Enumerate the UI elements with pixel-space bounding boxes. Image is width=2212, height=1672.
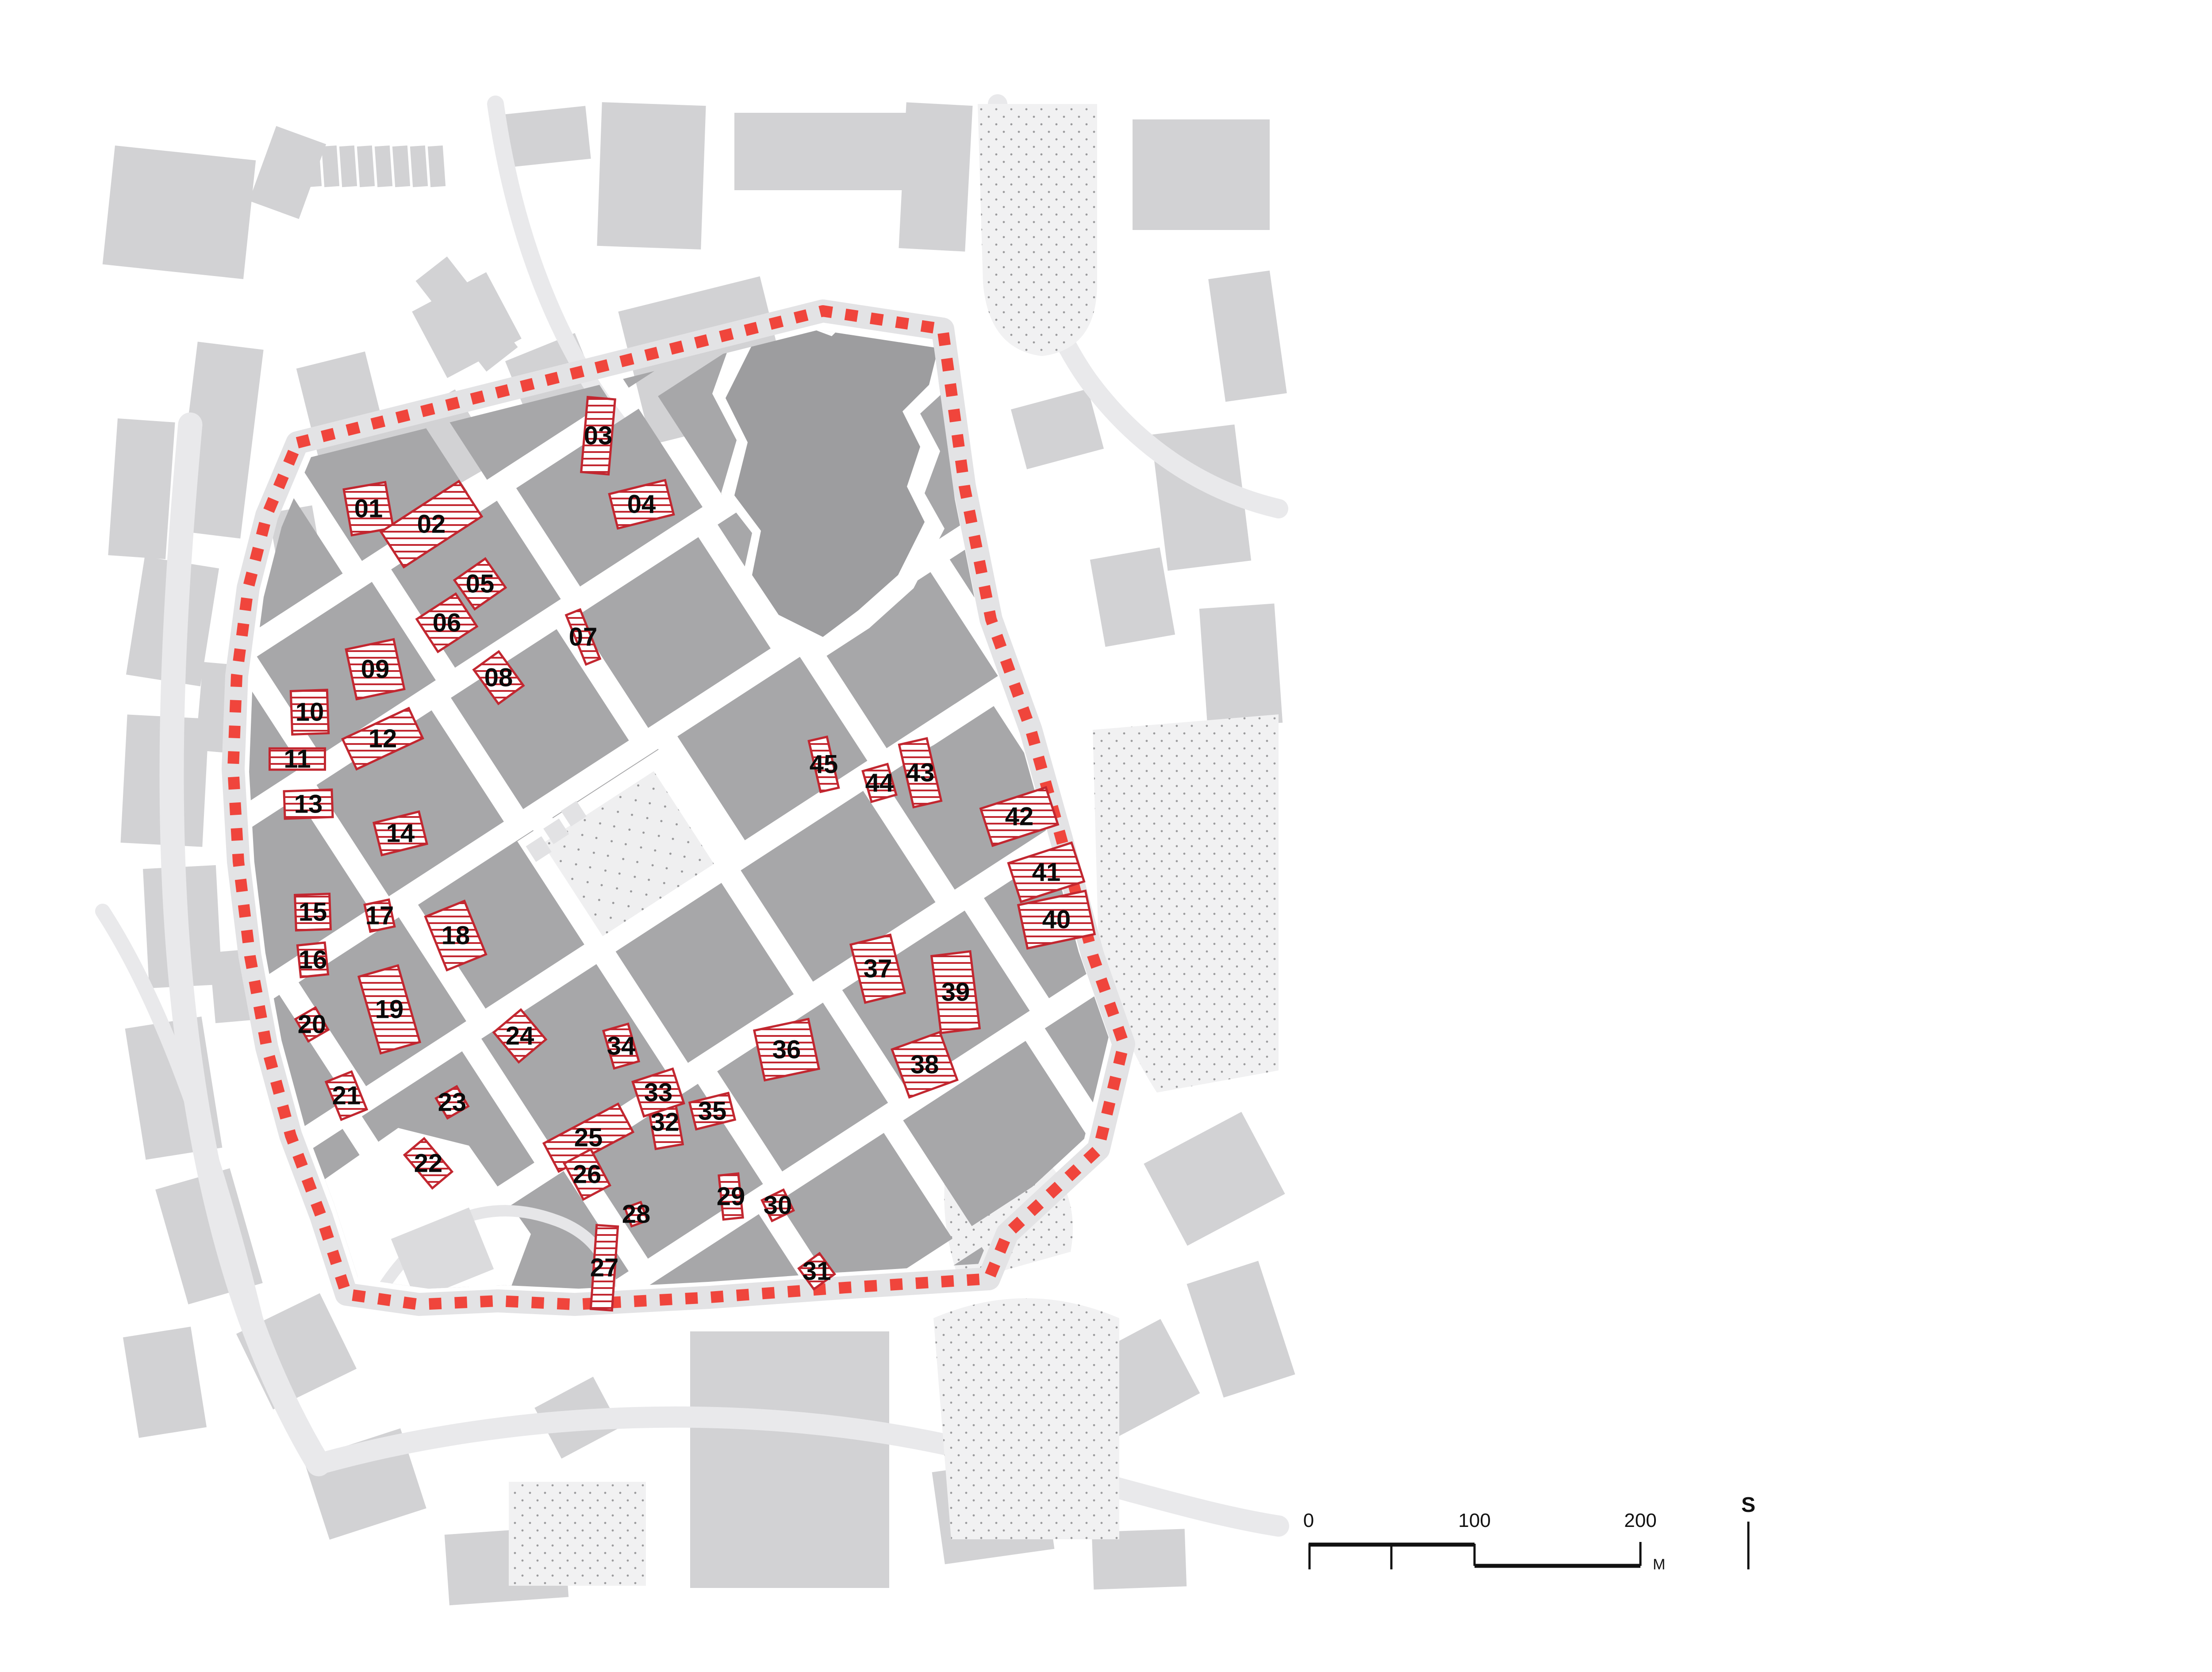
scale-tick-0: 0 [1303,1510,1314,1531]
context-building [734,113,925,190]
plot-number-label: 05 [466,570,495,598]
plot-23: 23 [436,1086,469,1118]
context-building [286,146,304,187]
site-map-canvas: 0102030405060708091011121314151617181920… [0,0,2212,1672]
plot-13: 13 [284,790,333,819]
scale-tick-100: 100 [1458,1510,1490,1531]
plot-number-label: 27 [590,1254,619,1282]
plot-number-label: 38 [910,1051,939,1079]
context-building [322,146,339,187]
plot-03: 03 [581,397,615,475]
plot-number-label: 28 [622,1200,651,1229]
context-building [899,102,972,251]
plot-number-label: 29 [717,1182,745,1211]
context-building [410,146,428,187]
plot-number-label: 02 [417,510,446,539]
context-building [103,146,256,279]
plot-number-label: 22 [414,1149,443,1178]
plot-09: 09 [346,639,404,699]
plot-44: 44 [863,764,896,801]
plot-number-label: 45 [810,750,838,779]
plot-number-label: 39 [941,978,970,1007]
plot-number-label: 17 [365,901,394,930]
plot-number-label: 31 [803,1257,831,1286]
plot-number-label: 21 [332,1081,361,1110]
context-building [1199,603,1283,728]
plot-36: 36 [754,1019,819,1080]
plot-number-label: 44 [865,769,894,798]
plot-30: 30 [762,1190,793,1221]
context-building [304,146,322,187]
plot-10: 10 [291,690,328,735]
plot-number-label: 03 [584,422,613,450]
context-building [375,146,392,187]
north-label: S [1741,1493,1755,1517]
plot-number-label: 30 [764,1191,792,1220]
plot-number-label: 18 [442,921,470,950]
plot-number-label: 12 [369,725,397,753]
plot-number-label: 08 [484,663,513,692]
context-building [357,146,375,187]
plot-number-label: 14 [386,819,415,848]
context-building [428,146,445,187]
plot-number-label: 10 [296,698,324,727]
plot-number-label: 09 [361,655,390,684]
plot-number-label: 15 [299,898,327,927]
plot-number-label: 01 [354,495,383,523]
plot-17: 17 [365,900,395,932]
plot-11: 11 [270,745,325,774]
plot-number-label: 16 [299,946,327,974]
context-building [1133,119,1270,230]
plot-number-label: 20 [298,1010,326,1039]
context-building [597,102,706,249]
plot-number-label: 33 [644,1078,673,1107]
scale-unit-label: M [1653,1556,1665,1573]
context-building [392,146,410,187]
plot-number-label: 04 [627,490,656,519]
plot-16: 16 [297,943,328,977]
scale-tick-200: 200 [1624,1510,1656,1531]
plot-number-label: 34 [607,1032,636,1061]
plot-number-label: 42 [1005,802,1034,831]
plot-20: 20 [296,1008,328,1041]
plot-01: 01 [344,482,393,535]
context-building [108,418,175,559]
plot-number-label: 43 [906,759,935,787]
plot-number-label: 06 [433,609,461,637]
plot-number-label: 13 [294,790,323,819]
plot-number-label: 41 [1032,858,1061,887]
plot-number-label: 36 [772,1035,801,1064]
plot-39: 39 [932,951,980,1033]
plot-number-label: 24 [506,1022,534,1051]
plot-number-label: 35 [698,1097,727,1126]
plot-number-label: 19 [375,995,404,1024]
context-building [339,146,357,187]
plot-number-label: 40 [1042,905,1071,934]
context-building [690,1331,889,1588]
plot-number-label: 23 [438,1088,467,1117]
plot-number-label: 11 [284,745,311,774]
plot-number-label: 25 [574,1124,603,1152]
plot-number-label: 07 [569,623,598,652]
plot-28: 28 [622,1200,651,1229]
plot-15: 15 [295,894,331,931]
plot-number-label: 37 [864,955,892,983]
plot-number-label: 26 [573,1160,602,1189]
context-building [1090,548,1175,647]
plot-31: 31 [799,1254,835,1289]
